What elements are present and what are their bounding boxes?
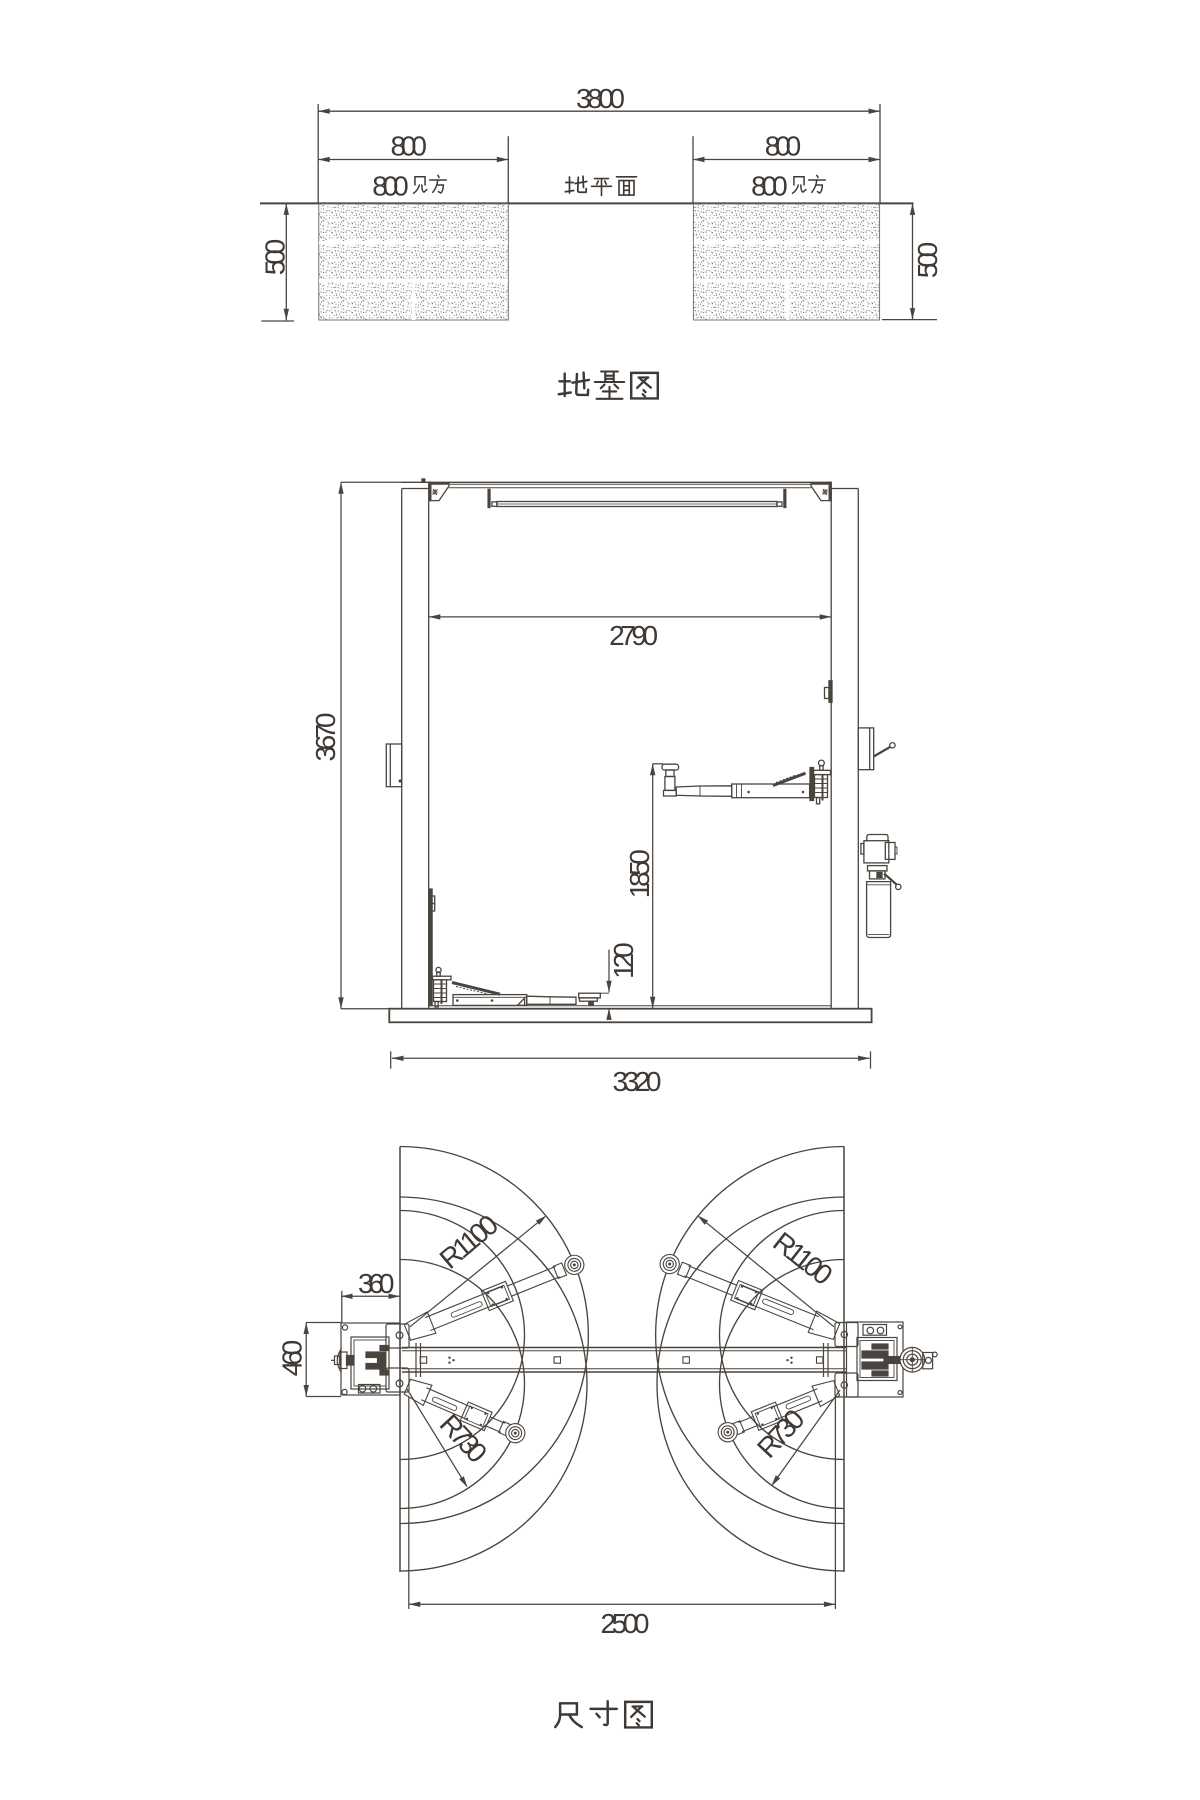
svg-text:460: 460: [277, 1340, 308, 1377]
svg-text:500: 500: [260, 239, 291, 276]
svg-text:800: 800: [372, 171, 409, 202]
svg-text:800: 800: [390, 131, 427, 162]
svg-text:360: 360: [358, 1268, 395, 1299]
svg-text:3320: 3320: [613, 1066, 662, 1097]
svg-text:3800: 3800: [576, 83, 625, 114]
svg-text:120: 120: [608, 942, 639, 979]
svg-text:3670: 3670: [310, 713, 341, 762]
svg-text:2500: 2500: [601, 1608, 650, 1639]
svg-text:2790: 2790: [609, 620, 658, 651]
svg-text:500: 500: [912, 242, 943, 279]
svg-text:1850: 1850: [624, 849, 655, 898]
svg-text:800: 800: [765, 131, 802, 162]
svg-text:800: 800: [751, 171, 788, 202]
